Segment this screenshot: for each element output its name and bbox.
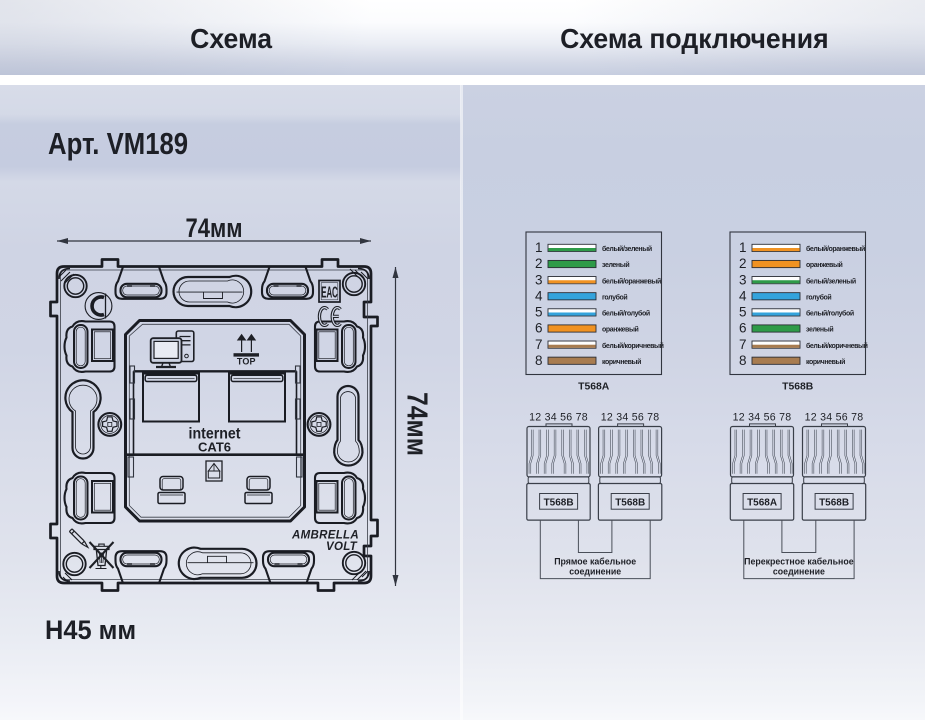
svg-text:12 34 56 78: 12 34 56 78	[733, 412, 792, 424]
svg-text:голубой: голубой	[806, 293, 831, 301]
svg-text:5: 5	[535, 305, 543, 320]
svg-text:T568B: T568B	[544, 497, 574, 508]
svg-text:коричневый: коричневый	[806, 358, 845, 366]
svg-text:белый/коричневый: белый/коричневый	[602, 342, 664, 350]
svg-text:3: 3	[535, 272, 543, 287]
svg-text:6: 6	[739, 321, 747, 336]
svg-text:12 34 56 78: 12 34 56 78	[805, 412, 864, 424]
svg-text:6: 6	[535, 321, 543, 336]
svg-text:T568A: T568A	[747, 497, 777, 508]
svg-text:белый/коричневый: белый/коричневый	[806, 342, 868, 350]
svg-text:1: 1	[739, 240, 747, 255]
svg-text:8: 8	[535, 353, 543, 368]
svg-text:белый/оранжевый: белый/оранжевый	[806, 245, 865, 253]
svg-text:12 34 56 78: 12 34 56 78	[601, 412, 660, 424]
svg-text:4: 4	[535, 288, 543, 303]
svg-text:оранжевый: оранжевый	[602, 326, 639, 334]
svg-text:1: 1	[535, 240, 543, 255]
svg-text:7: 7	[739, 337, 747, 352]
svg-text:Перекрестное кабельное: Перекрестное кабельное	[744, 557, 854, 567]
svg-text:коричневый: коричневый	[602, 358, 641, 366]
svg-text:соединение: соединение	[773, 567, 825, 577]
svg-text:T568B: T568B	[819, 497, 849, 508]
svg-text:AMBRELLA: AMBRELLA	[291, 530, 359, 542]
svg-text:8: 8	[739, 353, 747, 368]
svg-text:белый/оранжевый: белый/оранжевый	[602, 277, 661, 285]
svg-text:белый/зеленый: белый/зеленый	[806, 277, 856, 285]
svg-text:74мм: 74мм	[186, 213, 243, 243]
svg-text:ЕАС: ЕАС	[321, 285, 338, 302]
svg-text:TOP: TOP	[237, 357, 256, 367]
svg-text:5: 5	[739, 305, 747, 320]
svg-text:12 34 56 78: 12 34 56 78	[529, 412, 588, 424]
svg-text:T568B: T568B	[782, 382, 814, 393]
svg-text:белый/голубой: белый/голубой	[806, 310, 854, 318]
svg-text:белый/зеленый: белый/зеленый	[602, 245, 652, 253]
svg-text:7: 7	[535, 337, 543, 352]
svg-text:74мм: 74мм	[401, 392, 433, 456]
svg-text:T568A: T568A	[578, 382, 610, 393]
svg-text:4: 4	[739, 288, 747, 303]
svg-text:белый/голубой: белый/голубой	[602, 310, 650, 318]
svg-text:зеленый: зеленый	[602, 261, 629, 269]
svg-text:2: 2	[739, 256, 747, 271]
svg-text:T568B: T568B	[615, 497, 645, 508]
svg-text:оранжевый: оранжевый	[806, 261, 843, 269]
svg-text:3: 3	[739, 272, 747, 287]
svg-text:2: 2	[535, 256, 543, 271]
svg-text:Прямое кабельное: Прямое кабельное	[554, 557, 636, 567]
svg-text:соединение: соединение	[569, 567, 621, 577]
svg-text:CAT6: CAT6	[198, 441, 231, 455]
svg-text:голубой: голубой	[602, 293, 627, 301]
svg-text:зеленый: зеленый	[806, 326, 833, 334]
svg-text:VOLT: VOLT	[326, 541, 358, 553]
